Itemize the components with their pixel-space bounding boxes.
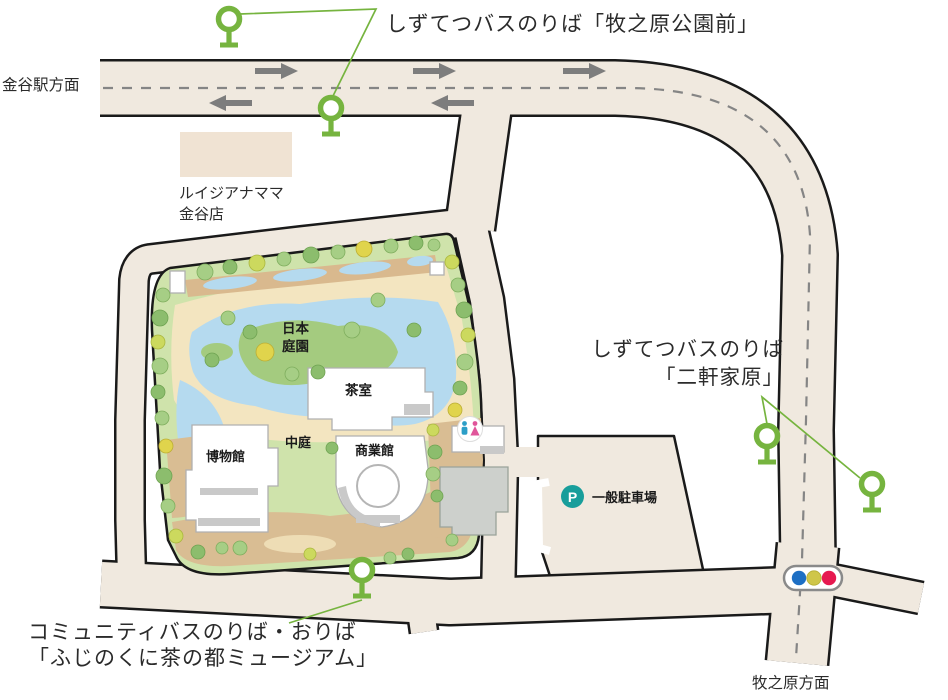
label-bus-stop-nikenyahara: しずてつバスのりば 「二軒家原」 bbox=[548, 336, 784, 391]
bus-stop-icon-makinohara-park-north bbox=[219, 9, 240, 48]
toilet-icon bbox=[458, 417, 483, 442]
label-parking: 一般駐車場 bbox=[592, 490, 657, 507]
bus-stop-icon-nikenyahara-west bbox=[757, 426, 778, 465]
label-commercial-hall: 商業館 bbox=[355, 443, 394, 460]
parking-icon: P bbox=[561, 485, 584, 508]
parking-entrance bbox=[505, 447, 548, 477]
bus-stop-icon-makinohara-park-south bbox=[321, 98, 342, 137]
label-tea-room: 茶室 bbox=[345, 382, 372, 400]
label-community-bus-stop: コミュニティバスのりば・おりば 「ふじのくに茶の都ミュージアム」 bbox=[28, 620, 378, 673]
label-japanese-garden: 日本庭園 bbox=[282, 320, 310, 355]
museum-building bbox=[186, 425, 278, 532]
parking-lot bbox=[538, 436, 704, 582]
route-map bbox=[0, 0, 948, 700]
label-museum: 博物館 bbox=[206, 449, 245, 466]
label-bus-stop-makinohara-park: しずてつバスのりば「牧之原公園前」 bbox=[386, 11, 759, 38]
label-courtyard: 中庭 bbox=[285, 435, 311, 452]
bus-stop-icon-nikenyahara-east bbox=[862, 474, 883, 513]
traffic-light-icon bbox=[784, 566, 842, 590]
map-canvas: 金谷駅方面 しずてつバスのりば「牧之原公園前」 ルイジアナママ 金谷店 しずてつ… bbox=[0, 0, 948, 700]
south-sand-oval bbox=[264, 535, 336, 553]
louisiana-mama-building bbox=[180, 132, 292, 177]
label-kanaya-direction: 金谷駅方面 bbox=[2, 76, 80, 96]
label-makinohara-direction: 牧之原方面 bbox=[752, 674, 830, 694]
label-louisiana-mama: ルイジアナママ 金谷店 bbox=[179, 183, 284, 225]
garden-hut bbox=[430, 262, 444, 275]
garden-hut bbox=[170, 271, 185, 293]
